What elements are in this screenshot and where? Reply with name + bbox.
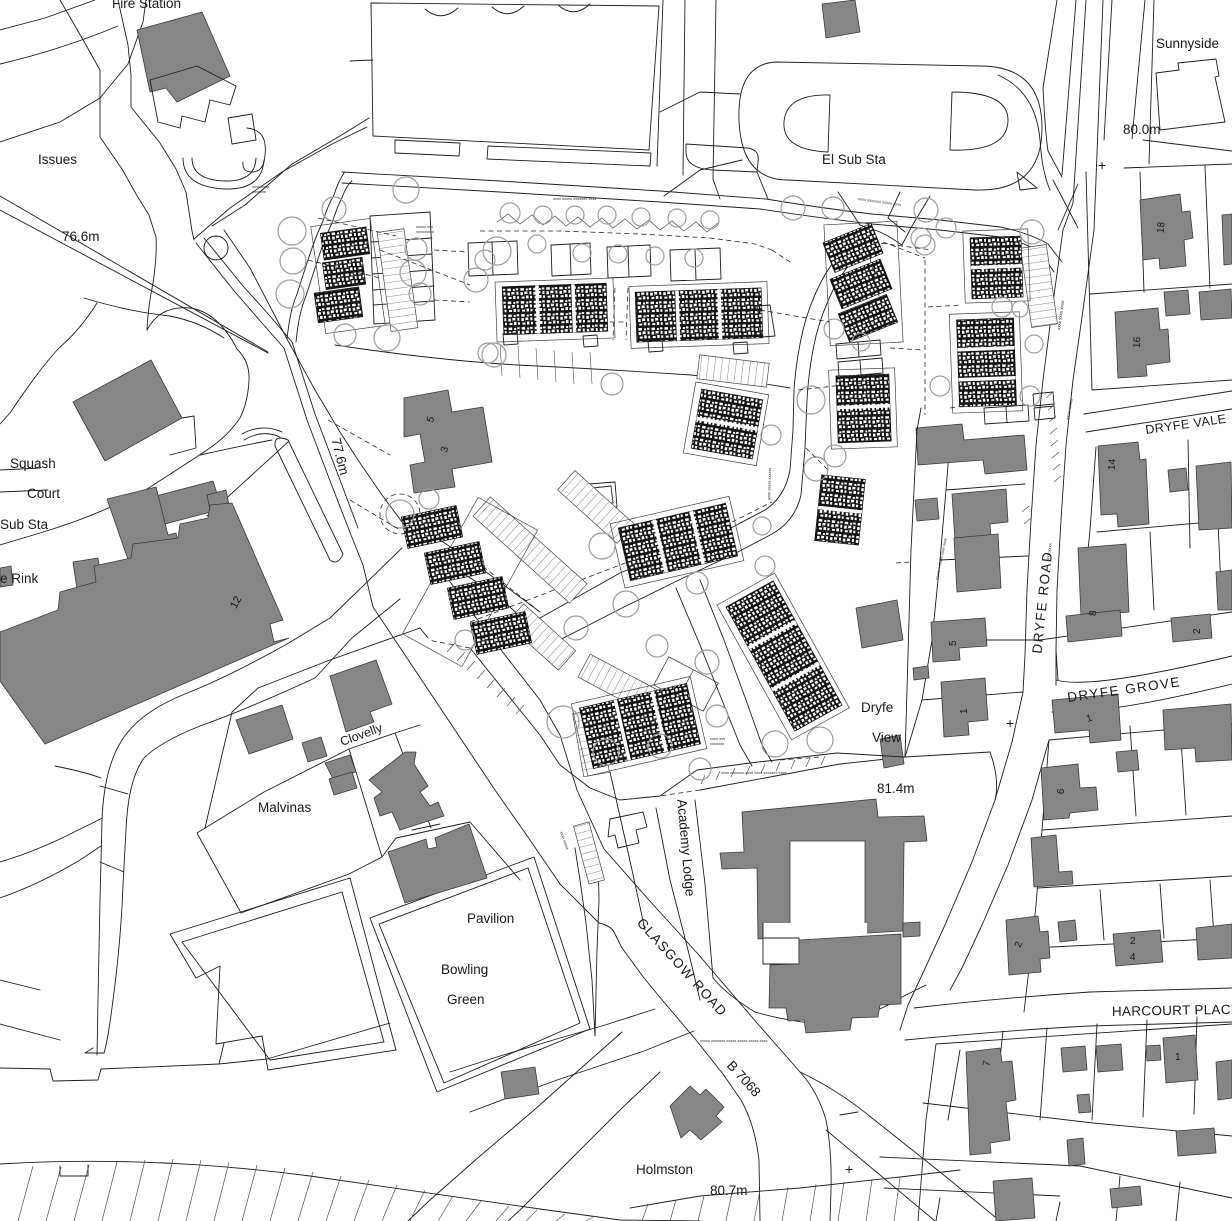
svg-text:16: 16 [1132,336,1144,348]
svg-text:xxxxxxx: xxxxxxx [252,189,266,194]
svg-text:Court: Court [27,486,60,501]
svg-text:4: 4 [1130,952,1136,963]
svg-text:View: View [872,730,901,745]
svg-text:Sunnyside: Sunnyside [1156,36,1219,51]
svg-text:Bowling: Bowling [441,962,488,977]
svg-text:14: 14 [1107,458,1119,470]
svg-text:HARCOURT PLACE: HARCOURT PLACE [1112,1002,1232,1019]
svg-text:2: 2 [1192,628,1203,634]
svg-text:Fire Station: Fire Station [112,0,181,11]
svg-text:81.4m: 81.4m [877,781,915,796]
svg-text:Holmston: Holmston [636,1162,693,1177]
svg-text:xxxx xxxxxxx xxxx xxxx xxxxxxx: xxxx xxxxxxx xxxx xxxx xxxxxxx xxxx [721,770,787,775]
svg-text:Pavilion: Pavilion [467,911,514,926]
svg-text:xxxx xxxxx xxxxxxx xxxx: xxxx xxxxx xxxxxxx xxxx [553,196,596,201]
svg-text:+: + [845,1161,853,1177]
svg-text:Malvinas: Malvinas [258,800,312,815]
svg-text:Dryfe: Dryfe [861,700,893,715]
svg-text:1: 1 [1175,1052,1181,1063]
svg-text:1: 1 [959,708,970,714]
svg-text:+: + [1098,157,1106,173]
svg-text:76.6m: 76.6m [62,229,100,244]
svg-text:18: 18 [1156,221,1168,233]
svg-text:e Rink: e Rink [0,571,39,586]
svg-text:Green: Green [447,992,485,1007]
svg-text:8: 8 [1088,610,1099,616]
svg-text:5: 5 [948,640,959,646]
svg-text:2: 2 [1130,936,1136,947]
svg-text:80.7m: 80.7m [710,1183,748,1198]
svg-text:80.0m: 80.0m [1123,122,1161,137]
svg-text:El Sub Sta: El Sub Sta [822,152,886,167]
svg-text:xxxxxxxxx: xxxxxxxxx [416,229,434,234]
svg-text:xxxxx xxxxxxx xxxxx xxxxx xxxx: xxxxx xxxxxxx xxxxx xxxxx xxxxx xxxx [700,1038,768,1043]
svg-text:Sub Sta: Sub Sta [0,517,49,532]
svg-text:xxxxxxx: xxxxxxx [710,741,724,746]
svg-text:Squash: Squash [10,456,56,471]
svg-text:+: + [1006,715,1014,731]
svg-text:Issues: Issues [38,152,77,167]
